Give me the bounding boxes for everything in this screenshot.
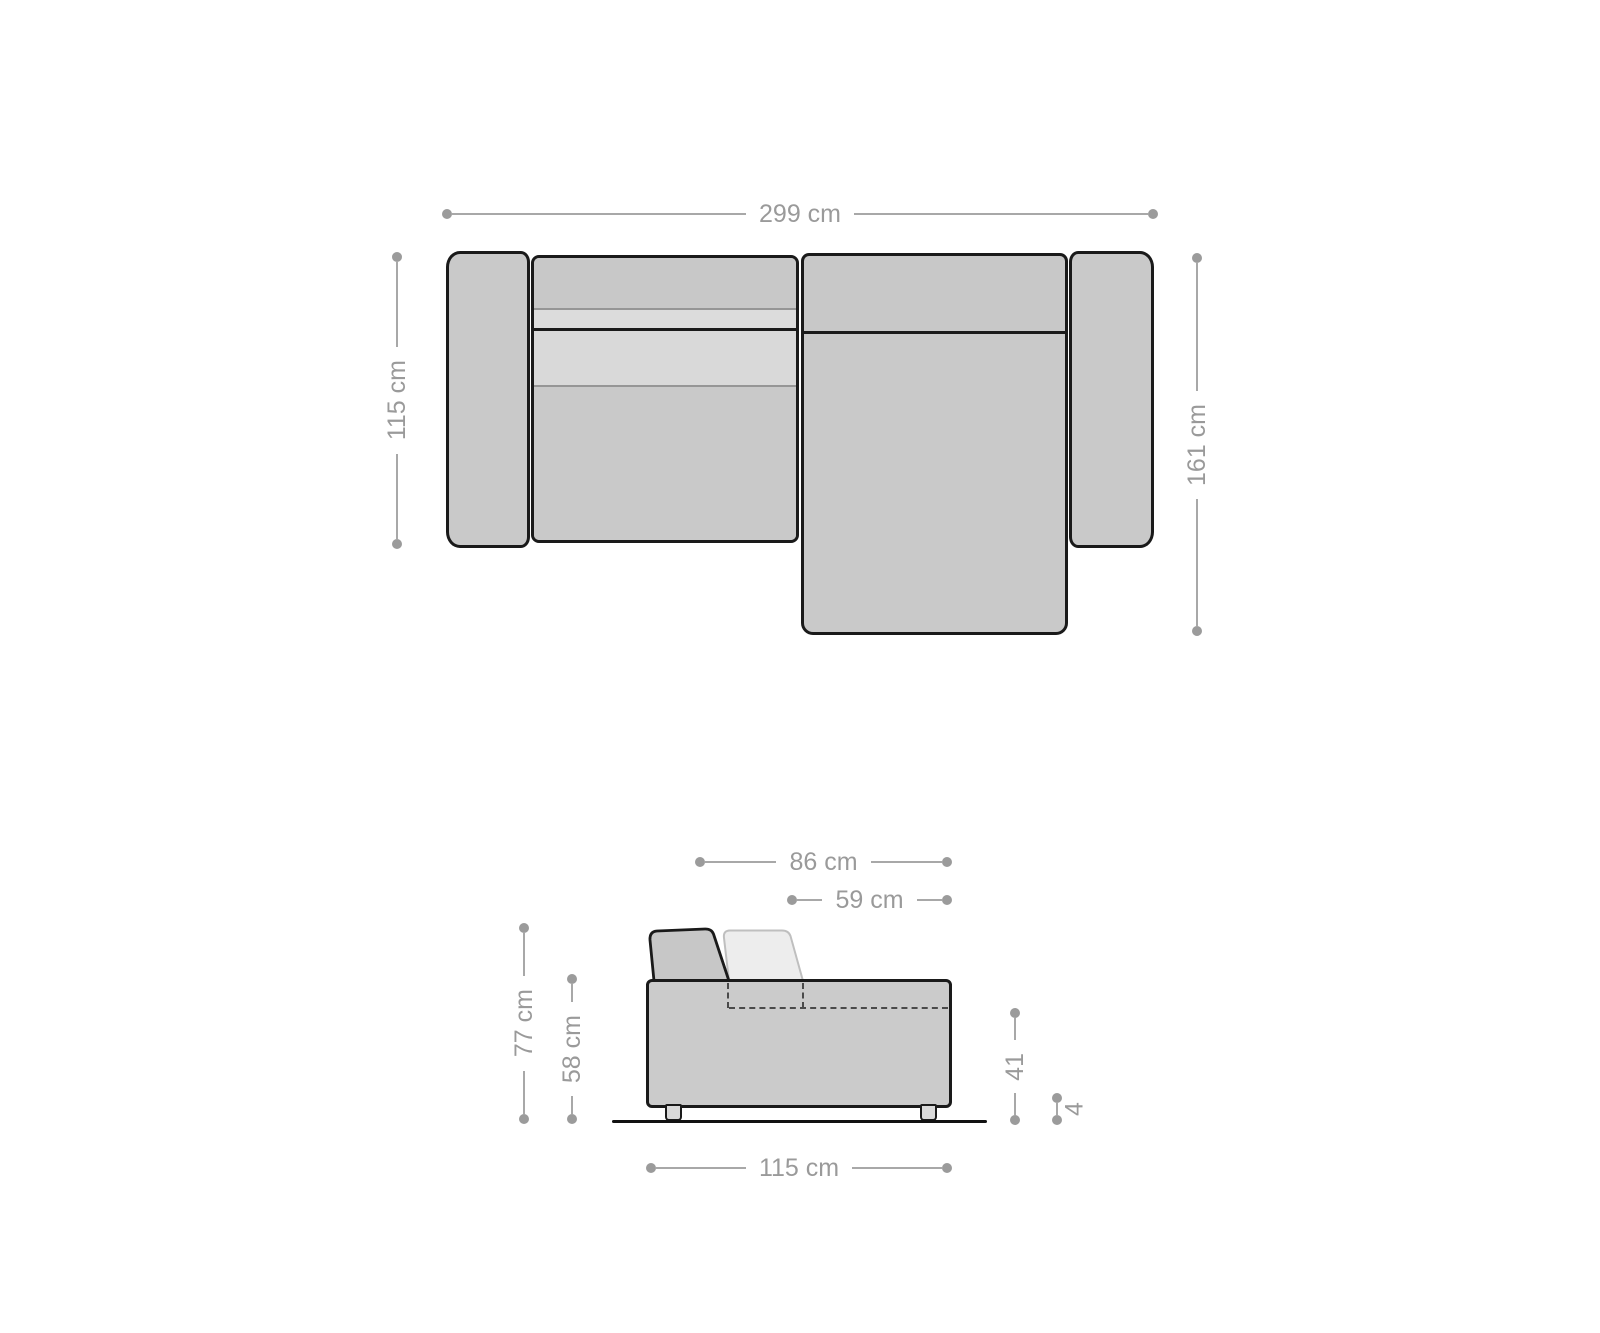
dim-line-segment <box>1196 499 1198 627</box>
top-view-backrest-cushion <box>534 258 796 310</box>
dim-seat-height-label: 41 <box>1003 1053 1028 1081</box>
dim-endpoint-dot <box>392 539 402 549</box>
dim-endpoint-dot <box>695 857 705 867</box>
top-view-back-cushion-edge <box>534 310 796 331</box>
dim-total-height-label: 77 cm <box>512 989 537 1057</box>
dim-line-segment <box>523 933 525 976</box>
floor-line <box>612 1120 987 1123</box>
dim-line-segment <box>852 1167 942 1169</box>
side-view-back-cushions <box>645 925 810 983</box>
dim-endpoint-dot <box>519 923 529 933</box>
dim-base-height: 58 cm <box>559 974 585 1124</box>
hidden-edge-dashed-line <box>802 983 804 1008</box>
dim-endpoint-dot <box>1052 1115 1062 1125</box>
dim-line-segment <box>396 262 398 347</box>
upright-back-cushion <box>650 929 729 981</box>
side-view-body <box>646 979 952 1108</box>
dim-line-segment <box>571 984 573 1002</box>
hidden-seat-dashed-line <box>729 1007 948 1009</box>
dim-endpoint-dot <box>567 1114 577 1124</box>
dim-line-segment <box>917 899 942 901</box>
dim-line-segment <box>396 454 398 539</box>
dim-seat-height: 41 <box>1002 1008 1028 1125</box>
dim-line-segment <box>705 861 776 863</box>
top-view-right-armrest <box>1069 251 1154 548</box>
sofa-dimension-diagram: 299 cm 115 cm 161 cm <box>0 0 1600 1333</box>
dim-seat-depth: 59 cm <box>787 887 952 913</box>
dim-line-segment <box>1196 263 1198 391</box>
dim-endpoint-dot <box>392 252 402 262</box>
top-view-recamiere <box>801 331 1068 635</box>
dim-endpoint-dot <box>1192 626 1202 636</box>
side-view-front-leg <box>665 1104 682 1121</box>
dim-line-segment <box>1014 1093 1016 1115</box>
dim-endpoint-dot <box>942 895 952 905</box>
dim-endpoint-dot <box>567 974 577 984</box>
dim-total-height: 77 cm <box>511 923 537 1124</box>
dim-sofa-depth-label: 115 cm <box>385 360 410 440</box>
dim-side-depth: 115 cm <box>646 1155 952 1181</box>
dim-base-height-label: 58 cm <box>560 1015 585 1083</box>
dim-line-segment <box>797 899 822 901</box>
dim-leg-height-label: 4 <box>1062 1096 1088 1122</box>
dim-seat-depth-label: 59 cm <box>835 888 903 913</box>
dim-line-segment <box>1056 1103 1058 1115</box>
dim-endpoint-dot <box>942 857 952 867</box>
dim-line-segment <box>571 1096 573 1114</box>
top-view-seat-cushion <box>534 331 796 387</box>
dim-endpoint-dot <box>1010 1115 1020 1125</box>
dim-line-segment <box>452 213 746 215</box>
dim-endpoint-dot <box>942 1163 952 1173</box>
dim-line-segment <box>854 213 1148 215</box>
top-view-seat-section <box>531 255 799 543</box>
dim-line-segment <box>523 1071 525 1114</box>
dim-endpoint-dot <box>1010 1008 1020 1018</box>
dim-endpoint-dot <box>787 895 797 905</box>
dim-endpoint-dot <box>519 1114 529 1124</box>
dim-line-segment <box>871 861 942 863</box>
dim-recamiere-depth-label: 161 cm <box>1185 404 1210 486</box>
dim-sofa-depth: 115 cm <box>384 252 410 549</box>
dim-line-segment <box>1014 1018 1016 1040</box>
dim-overall-width-label: 299 cm <box>759 202 841 227</box>
dim-overall-width: 299 cm <box>442 201 1158 227</box>
dim-side-depth-label: 115 cm <box>759 1156 839 1181</box>
dim-backrest-depth: 86 cm <box>695 849 952 875</box>
dim-recamiere-depth: 161 cm <box>1184 253 1210 636</box>
hidden-edge-dashed-line <box>727 983 729 1008</box>
side-view-back-leg <box>920 1104 937 1121</box>
top-view-seat-front <box>534 387 796 540</box>
dim-backrest-depth-label: 86 cm <box>789 850 857 875</box>
dim-endpoint-dot <box>1192 253 1202 263</box>
dim-line-segment <box>656 1167 746 1169</box>
top-view-left-armrest <box>446 251 530 548</box>
top-view-recamiere-backrest <box>801 253 1068 334</box>
dim-endpoint-dot <box>442 209 452 219</box>
dim-endpoint-dot <box>1148 209 1158 219</box>
reclined-back-cushion <box>724 931 803 982</box>
dim-endpoint-dot <box>646 1163 656 1173</box>
